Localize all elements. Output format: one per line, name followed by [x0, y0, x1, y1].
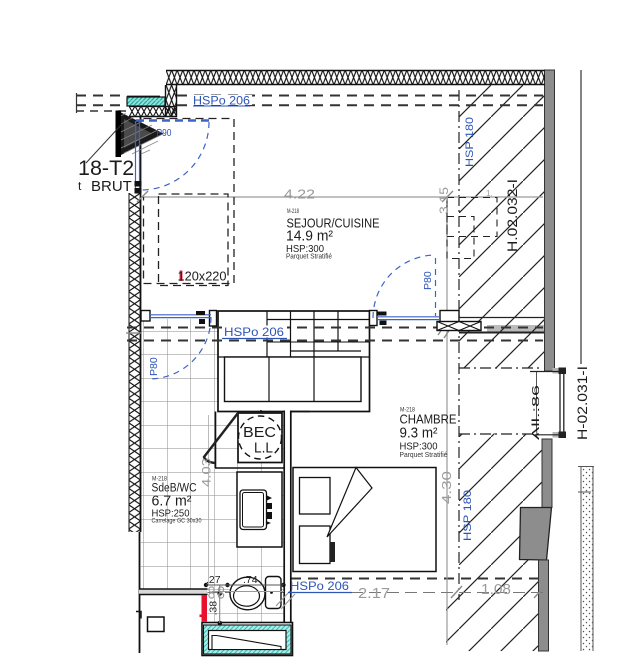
- svg-text:HSP 180: HSP 180: [462, 490, 474, 541]
- svg-text:4.22: 4.22: [284, 187, 315, 202]
- svg-text:HSPo 206: HSPo 206: [224, 325, 284, 339]
- svg-text:4.30: 4.30: [440, 471, 454, 504]
- svg-text:H.02.032-I: H.02.032-I: [505, 179, 520, 252]
- svg-text:9.3 m²: 9.3 m²: [400, 426, 438, 442]
- svg-text:M-218: M-218: [152, 476, 167, 483]
- svg-text:P80: P80: [422, 271, 434, 290]
- svg-text:BEC: BEC: [243, 424, 276, 441]
- svg-text:1.08: 1.08: [481, 582, 511, 598]
- svg-text:1.: 1.: [486, 189, 493, 198]
- svg-text:HSP:300: HSP:300: [400, 441, 438, 453]
- svg-text:P90: P90: [157, 127, 172, 139]
- svg-text:Parquet Stratifié: Parquet Stratifié: [400, 452, 448, 459]
- svg-text:.27: .27: [206, 574, 221, 586]
- svg-text:BRUT: BRUT: [91, 178, 132, 195]
- svg-text:M-218: M-218: [287, 208, 299, 215]
- svg-text:3.15: 3.15: [439, 187, 451, 214]
- svg-text:L.L: L.L: [254, 440, 273, 457]
- svg-text:All.:86: All.:86: [530, 385, 542, 440]
- svg-text:4.03: 4.03: [200, 458, 214, 487]
- svg-text:HSP 180: HSP 180: [464, 117, 476, 167]
- svg-text:CHAMBRE: CHAMBRE: [400, 412, 457, 427]
- svg-text:H-02.031-I: H-02.031-I: [575, 366, 590, 440]
- svg-text:HSPo 206: HSPo 206: [193, 93, 250, 107]
- svg-text:Parquet Stratifié: Parquet Stratifié: [286, 254, 332, 261]
- svg-text:P80: P80: [148, 357, 160, 376]
- svg-text:Carrelage GC 30x30: Carrelage GC 30x30: [152, 518, 202, 525]
- svg-text:2.17: 2.17: [358, 586, 390, 602]
- svg-text:18-T2: 18-T2: [78, 156, 134, 180]
- svg-text:.38: .38: [208, 601, 220, 616]
- svg-text:HSPo 206: HSPo 206: [290, 579, 349, 593]
- svg-text:120x220: 120x220: [178, 270, 227, 284]
- svg-text:.74: .74: [243, 574, 258, 586]
